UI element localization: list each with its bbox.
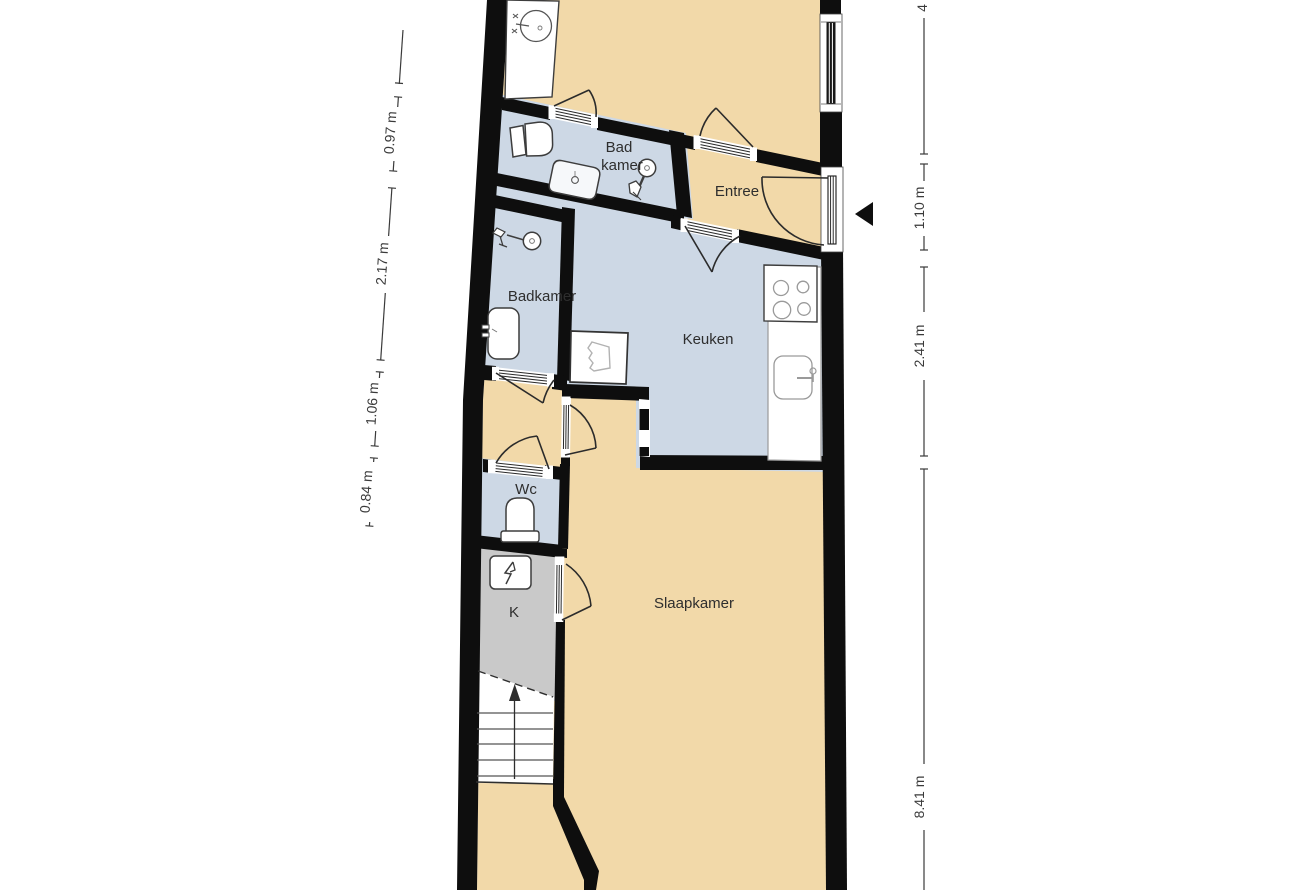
svg-text:Entree: Entree [715,183,759,200]
svg-text:K: K [509,604,519,621]
svg-text:Badkamer: Badkamer [508,288,576,305]
svg-text:1.10 m: 1.10 m [911,187,927,230]
svg-text:Slaapkamer: Slaapkamer [654,595,734,612]
svg-text:1.06 m: 1.06 m [363,382,382,426]
svg-text:8.41 m: 8.41 m [911,776,927,819]
svg-text:Keuken: Keuken [683,331,734,348]
svg-text:2.17 m: 2.17 m [373,242,392,286]
svg-text:0.84 m: 0.84 m [357,470,376,514]
svg-text:0.97 m: 0.97 m [381,111,400,155]
svg-text:4: 4 [914,4,930,12]
svg-text:Bad: Bad [606,139,633,156]
svg-text:Wc: Wc [515,481,537,498]
svg-text:kamer: kamer [601,157,643,174]
svg-text:2.41 m: 2.41 m [911,325,927,368]
